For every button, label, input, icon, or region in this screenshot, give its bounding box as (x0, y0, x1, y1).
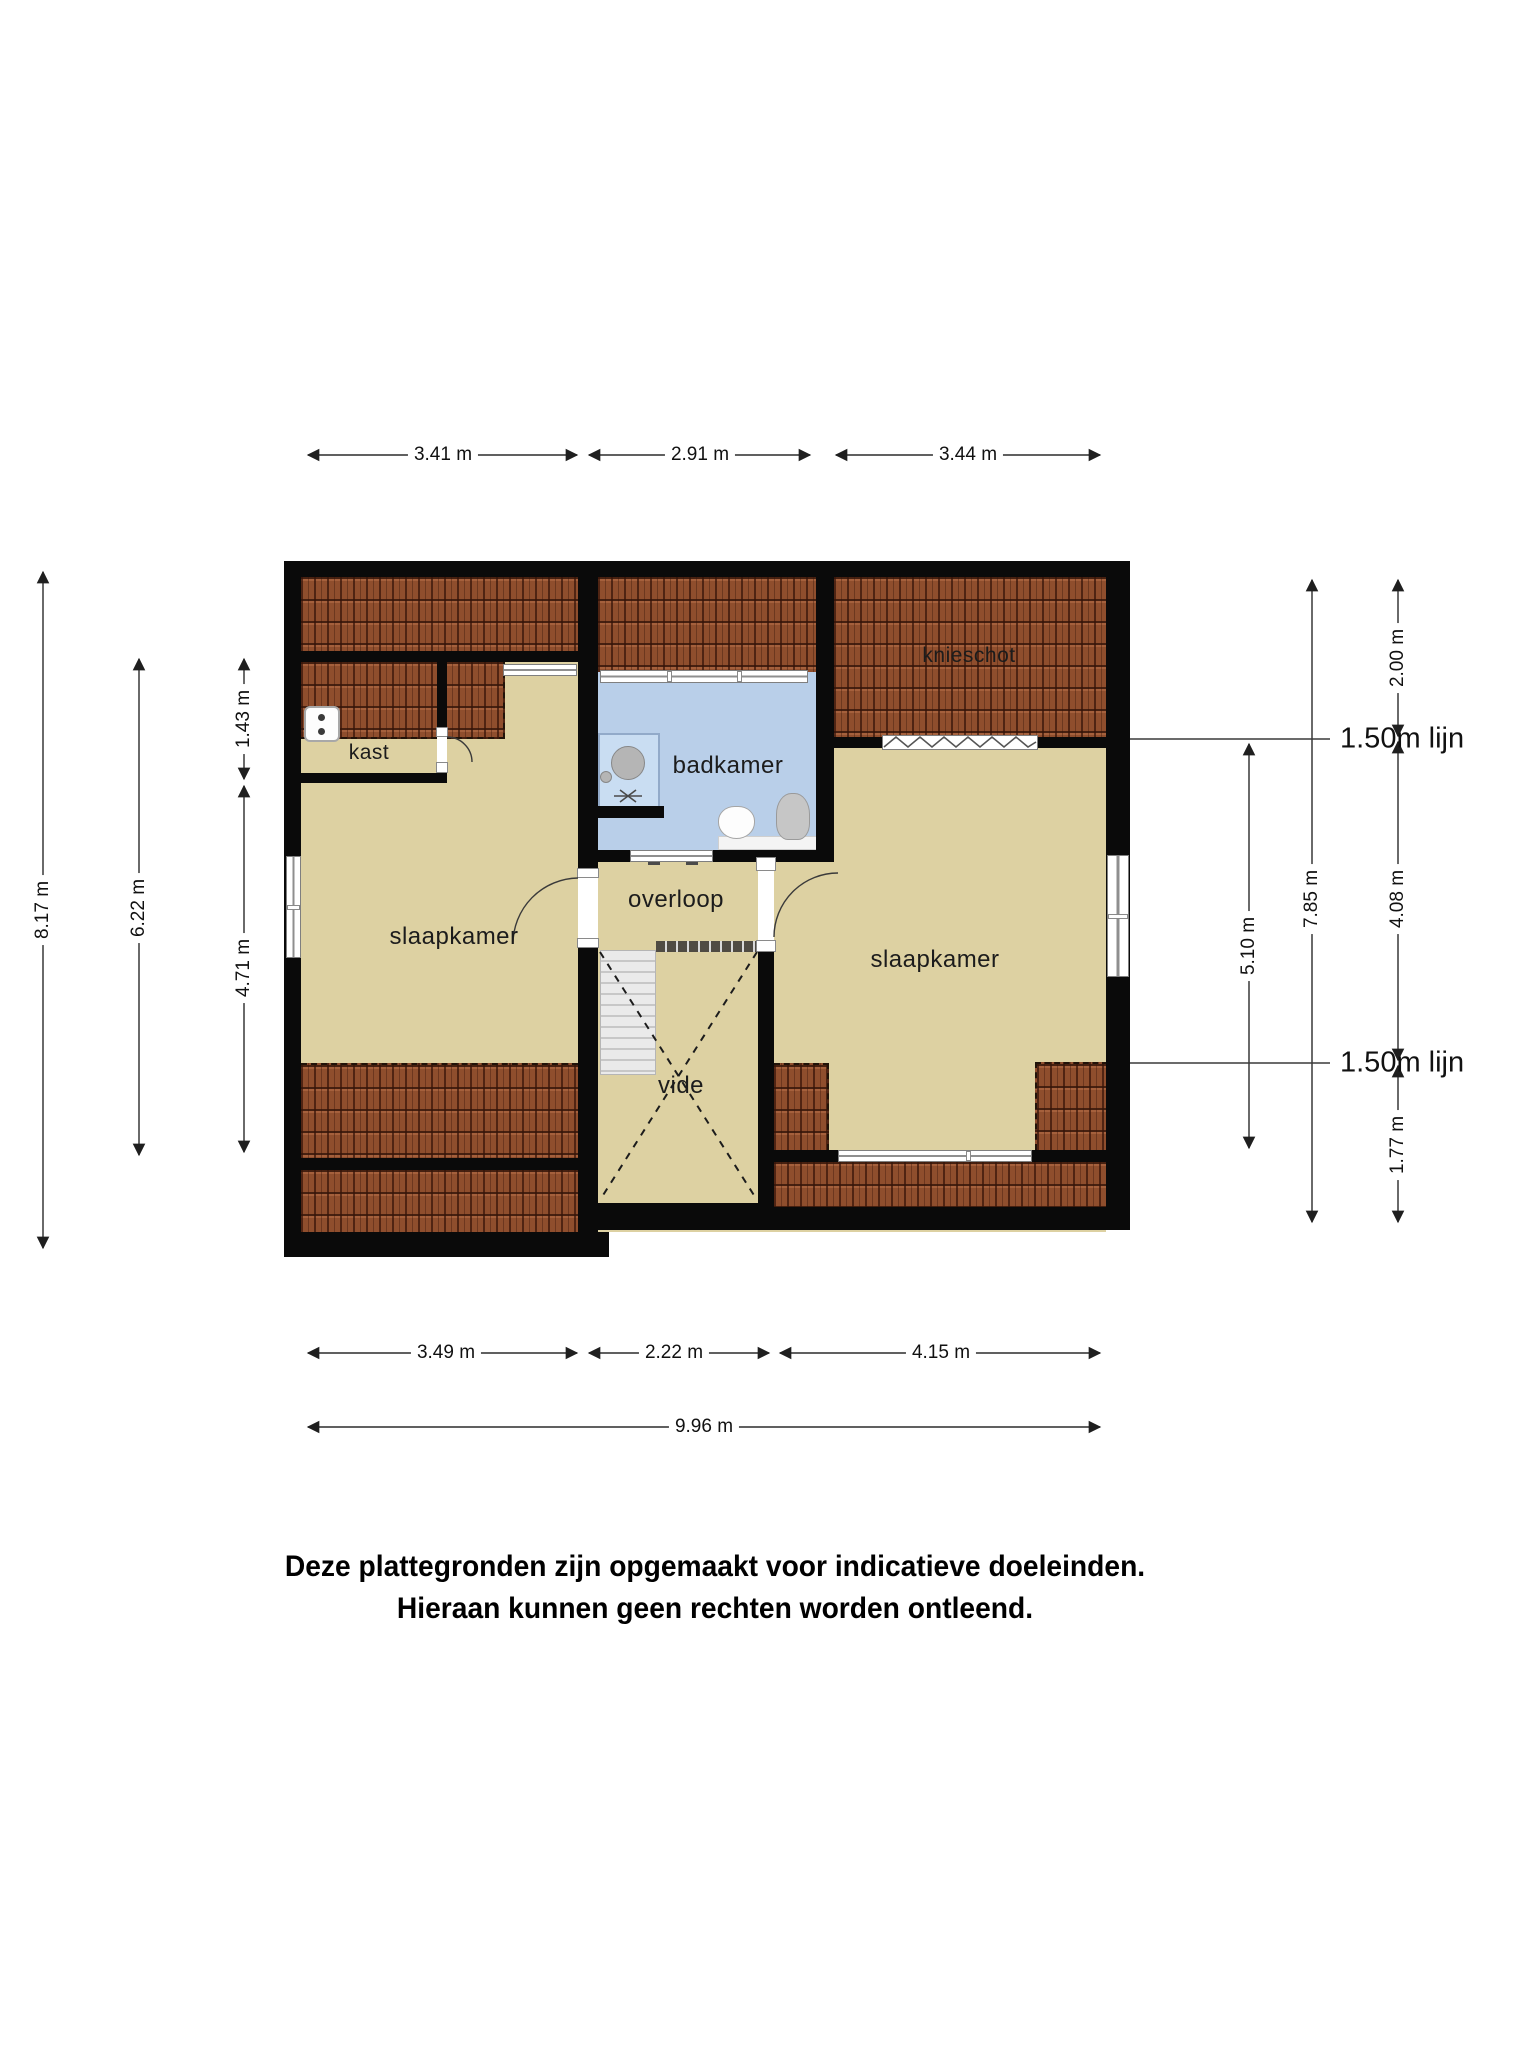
dimension-overlay (0, 0, 1536, 2048)
dim-bottom-1: 3.49 m (411, 1342, 481, 1364)
height-line-label-bottom: 1.50m lijn (1340, 1047, 1464, 1080)
dim-right-408: 4.08 m (1387, 864, 1409, 934)
dim-bottom-2: 2.22 m (639, 1342, 709, 1364)
room-label-kast: kast (349, 741, 390, 765)
dim-right-177: 1.77 m (1387, 1110, 1409, 1180)
dim-left-3: 1.43 m (233, 684, 255, 754)
dim-top-3: 3.44 m (933, 444, 1003, 466)
room-label-badkamer: badkamer (673, 752, 784, 780)
room-label-slaapkamer-left: slaapkamer (389, 923, 518, 951)
dim-top-1: 3.41 m (408, 444, 478, 466)
room-label-slaapkamer-right: slaapkamer (870, 946, 999, 974)
floorplan: kast slaapkamer badkamer overloop vide s… (0, 0, 1536, 2048)
dim-top-2: 2.91 m (665, 444, 735, 466)
disclaimer-line2: Hieraan kunnen geen rechten worden ontle… (264, 1588, 1166, 1630)
room-label-knieschot: knieschot (922, 644, 1015, 668)
dim-right-200: 2.00 m (1387, 623, 1409, 693)
dim-bottom-total: 9.96 m (669, 1416, 739, 1438)
dim-left-2: 6.22 m (128, 873, 150, 943)
radiator-zigzag (884, 737, 1036, 747)
dim-left-4: 4.71 m (233, 933, 255, 1003)
room-label-vide: vide (658, 1072, 704, 1100)
dim-bottom-3: 4.15 m (906, 1342, 976, 1364)
disclaimer: Deze plattegronden zijn opgemaakt voor i… (264, 1546, 1166, 1630)
dim-right-785: 7.85 m (1301, 864, 1323, 934)
dim-left-1: 8.17 m (32, 875, 54, 945)
disclaimer-line1: Deze plattegronden zijn opgemaakt voor i… (264, 1546, 1166, 1588)
dim-right-510: 5.10 m (1238, 911, 1260, 981)
room-label-overloop: overloop (628, 886, 724, 914)
height-line-label-top: 1.50m lijn (1340, 723, 1464, 756)
